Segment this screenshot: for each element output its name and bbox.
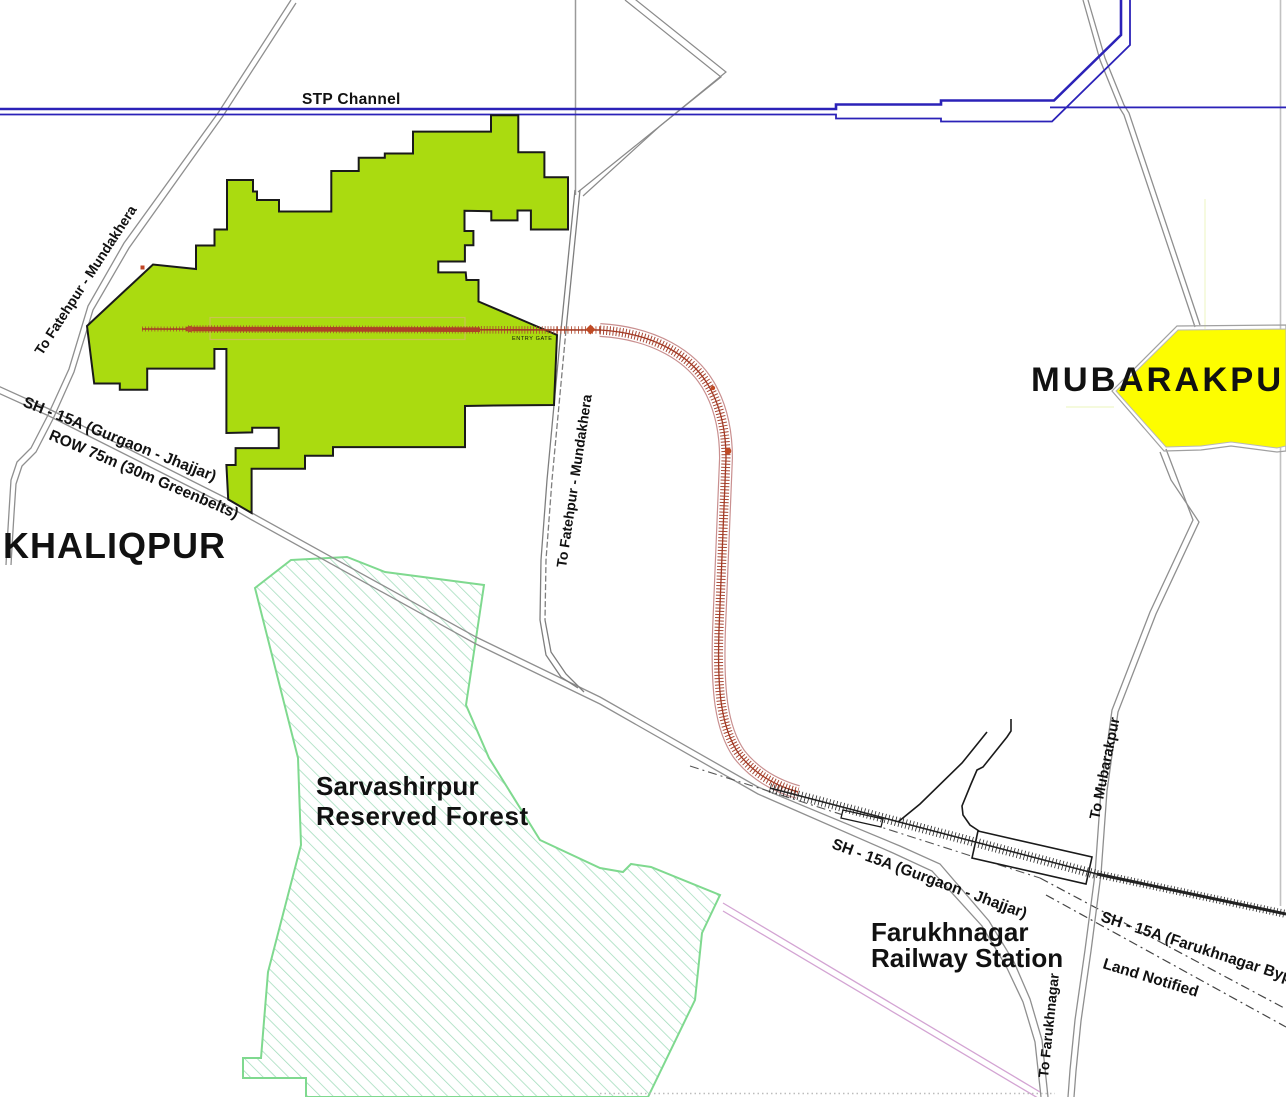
svg-text:Reserved Forest: Reserved Forest: [316, 801, 529, 831]
svg-text:KHALIQPUR: KHALIQPUR: [3, 525, 226, 566]
svg-text:Sarvashirpur: Sarvashirpur: [316, 771, 479, 801]
svg-text:Railway Station: Railway Station: [871, 943, 1063, 973]
svg-text:STP Channel: STP Channel: [302, 91, 401, 108]
svg-text:ENTRY GATE: ENTRY GATE: [512, 336, 553, 342]
svg-text:MUBARAKPUR: MUBARAKPUR: [1031, 361, 1286, 399]
